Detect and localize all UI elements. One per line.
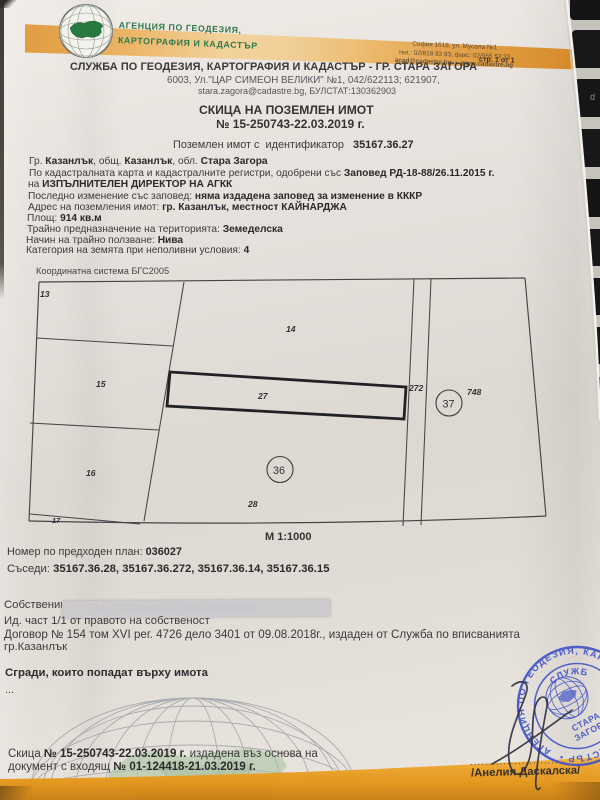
svg-text:d: d [590, 92, 595, 102]
